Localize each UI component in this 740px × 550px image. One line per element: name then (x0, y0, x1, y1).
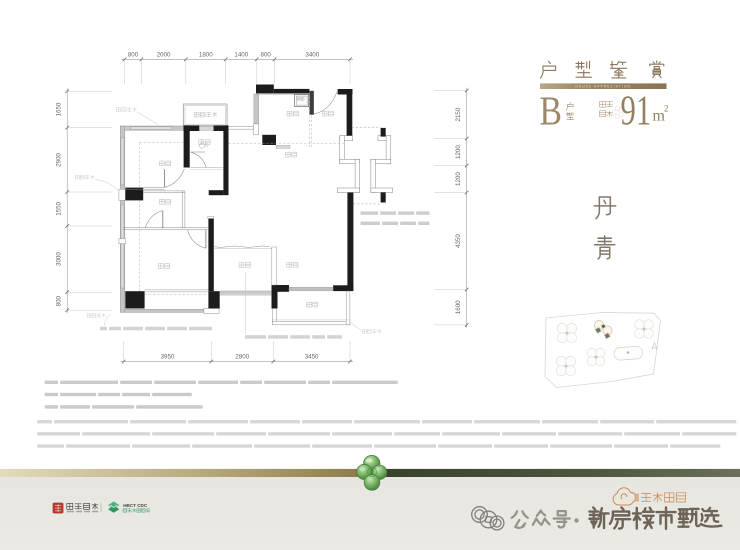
svg-text:2: 2 (664, 104, 669, 114)
svg-text:2150: 2150 (455, 107, 462, 121)
svg-text:2800: 2800 (235, 354, 249, 361)
svg-text:3950: 3950 (161, 354, 175, 361)
svg-text:91: 91 (621, 87, 652, 134)
svg-text:4350: 4350 (455, 234, 462, 248)
svg-text:3450: 3450 (305, 354, 319, 361)
svg-text:3000: 3000 (56, 252, 63, 266)
svg-text:2000: 2000 (157, 51, 171, 58)
svg-text:1600: 1600 (455, 300, 462, 314)
svg-text:1400: 1400 (234, 51, 248, 58)
svg-text:HBCT CDC: HBCT CDC (123, 503, 148, 508)
svg-text:1650: 1650 (56, 102, 63, 116)
svg-text:1800: 1800 (199, 51, 213, 58)
svg-text:800: 800 (261, 51, 272, 58)
svg-text:1550: 1550 (56, 201, 63, 215)
svg-text:1200: 1200 (455, 172, 462, 186)
svg-text:1200: 1200 (455, 145, 462, 159)
svg-text:3400: 3400 (305, 51, 319, 58)
svg-text:2900: 2900 (56, 152, 63, 166)
svg-text:B: B (540, 90, 562, 135)
svg-text:800: 800 (128, 51, 139, 58)
svg-text:800: 800 (56, 295, 63, 306)
